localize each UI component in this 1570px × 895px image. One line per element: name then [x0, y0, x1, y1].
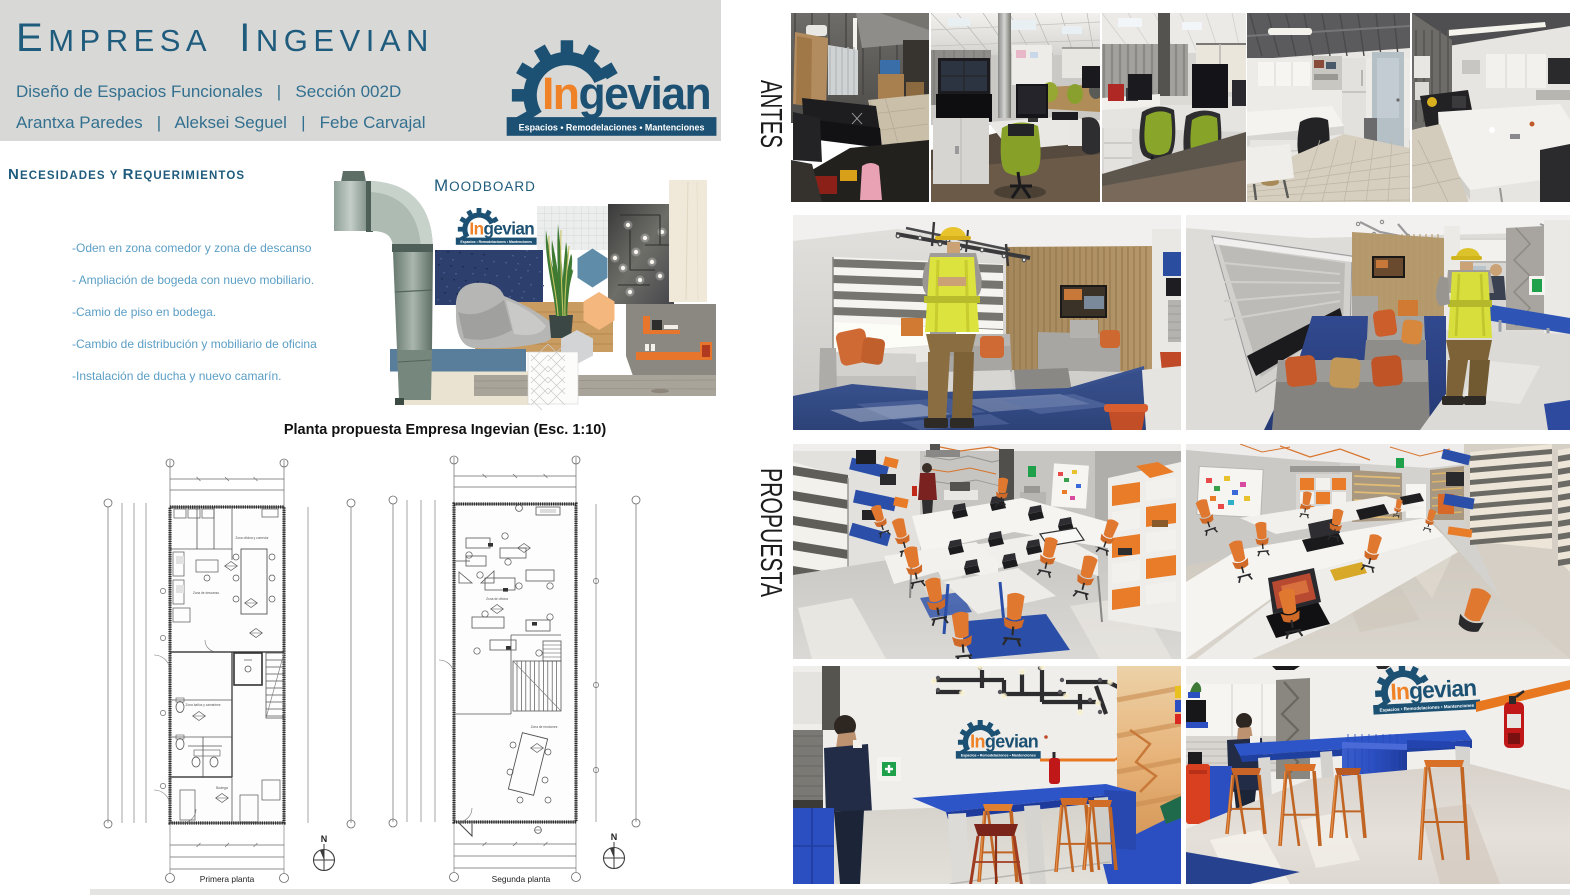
- svg-text:Zona de oficina: Zona de oficina: [486, 597, 508, 601]
- svg-text:Zona baños y camarines: Zona baños y camarines: [186, 703, 221, 707]
- svg-text:PROPUESTA: PROPUESTA: [754, 468, 789, 597]
- svg-text:MOODBOARD: MOODBOARD: [434, 176, 536, 195]
- svg-text:N: N: [611, 832, 618, 842]
- svg-text:Bodega: Bodega: [216, 786, 228, 790]
- svg-text:Primera planta: Primera planta: [200, 874, 255, 884]
- svg-text:Segunda planta: Segunda planta: [492, 874, 551, 884]
- svg-text:Zona de reuniones: Zona de reuniones: [531, 725, 558, 729]
- svg-text:N: N: [321, 834, 328, 844]
- svg-text:Zona oficina y comedor: Zona oficina y comedor: [235, 536, 269, 540]
- svg-text:ANTES: ANTES: [754, 80, 789, 148]
- svg-text:Zona de descanso: Zona de descanso: [193, 591, 219, 595]
